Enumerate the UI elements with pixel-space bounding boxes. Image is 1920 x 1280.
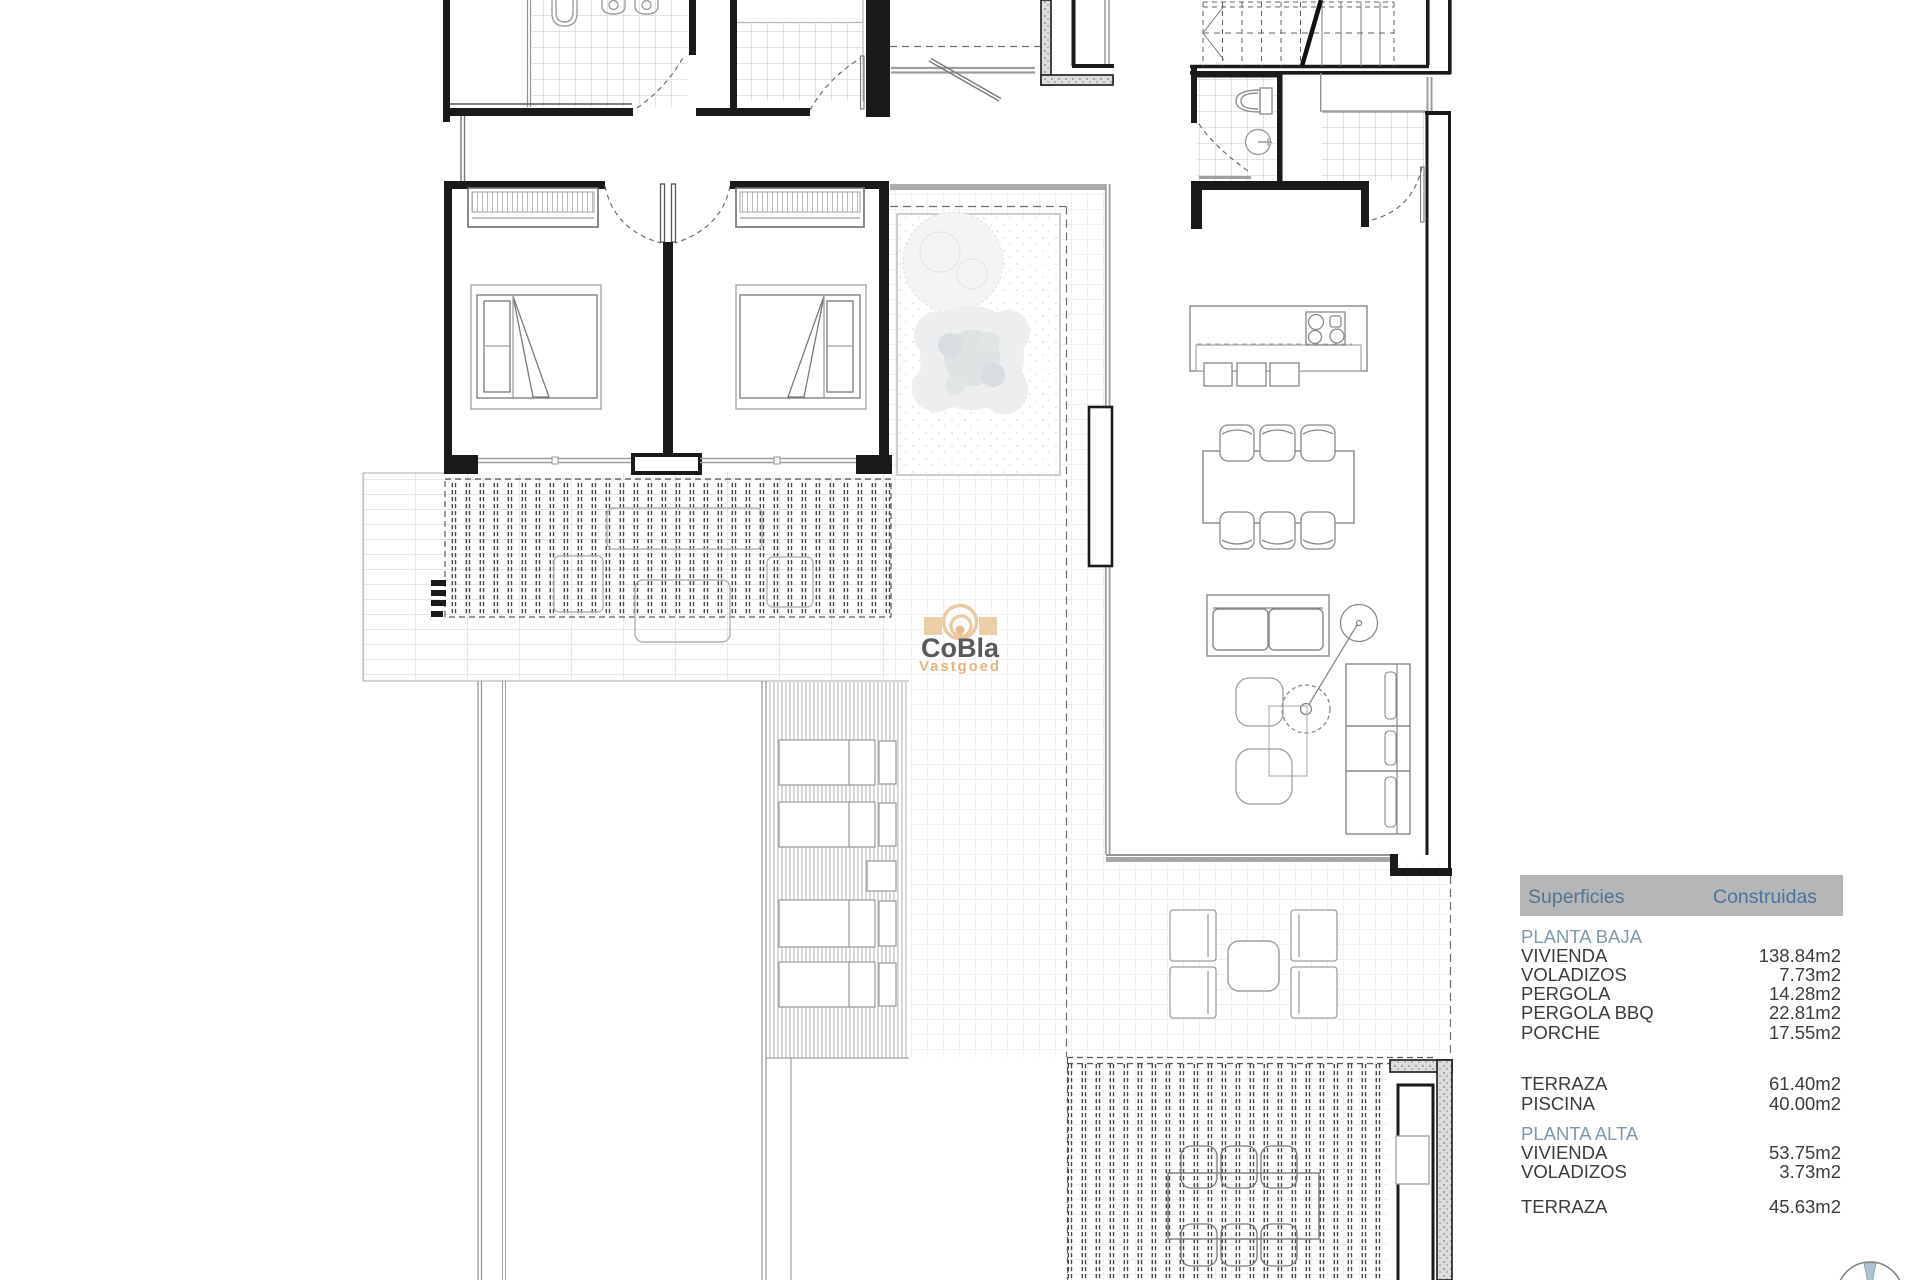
svg-text:PISCINA: PISCINA [1521, 1093, 1596, 1114]
svg-text:22.81m2: 22.81m2 [1769, 1002, 1841, 1023]
svg-text:7.73m2: 7.73m2 [1779, 964, 1841, 985]
svg-text:14.28m2: 14.28m2 [1769, 983, 1841, 1004]
svg-text:PERGOLA: PERGOLA [1521, 983, 1611, 1004]
svg-text:VOLADIZOS: VOLADIZOS [1521, 964, 1627, 985]
svg-text:PLANTA BAJA: PLANTA BAJA [1521, 926, 1643, 947]
svg-text:40.00m2: 40.00m2 [1769, 1093, 1841, 1114]
svg-text:TERRAZA: TERRAZA [1521, 1073, 1608, 1094]
svg-text:Construidas: Construidas [1713, 886, 1817, 908]
svg-text:VIVIENDA: VIVIENDA [1521, 1142, 1608, 1163]
svg-text:VOLADIZOS: VOLADIZOS [1521, 1161, 1627, 1182]
svg-text:Vastgoed: Vastgoed [919, 658, 1001, 675]
svg-text:53.75m2: 53.75m2 [1769, 1142, 1841, 1163]
svg-text:PERGOLA BBQ: PERGOLA BBQ [1521, 1002, 1654, 1023]
svg-text:Superficies: Superficies [1528, 886, 1625, 908]
svg-text:3.73m2: 3.73m2 [1779, 1161, 1841, 1182]
svg-text:PLANTA ALTA: PLANTA ALTA [1521, 1123, 1639, 1144]
svg-text:PORCHE: PORCHE [1521, 1022, 1600, 1043]
svg-text:TERRAZA: TERRAZA [1521, 1196, 1608, 1217]
svg-text:45.63m2: 45.63m2 [1769, 1196, 1841, 1217]
svg-text:138.84m2: 138.84m2 [1759, 945, 1841, 966]
svg-text:VIVIENDA: VIVIENDA [1521, 945, 1608, 966]
svg-text:17.55m2: 17.55m2 [1769, 1022, 1841, 1043]
svg-text:61.40m2: 61.40m2 [1769, 1073, 1841, 1094]
